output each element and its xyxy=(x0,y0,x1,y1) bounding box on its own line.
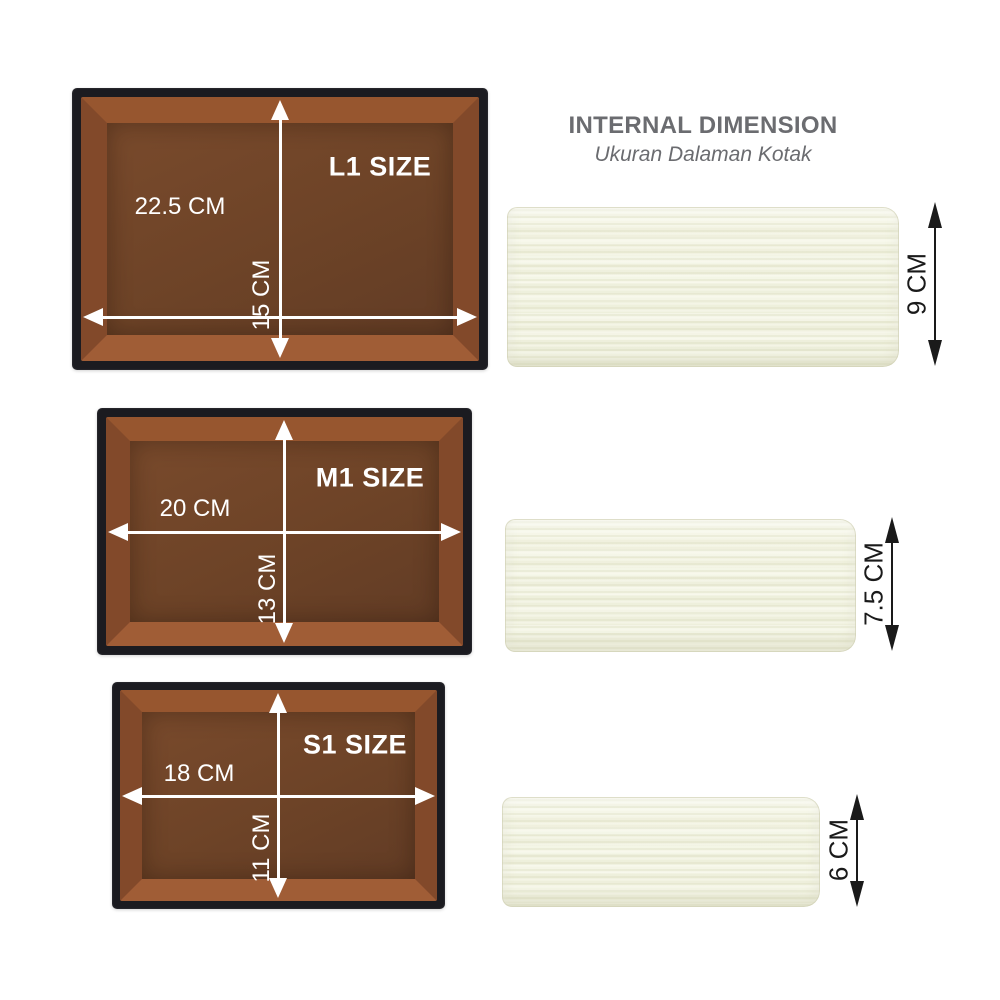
height-dimension-label-s1: 6 CM xyxy=(824,819,855,881)
page-subtitle: Ukuran Dalaman Kotak xyxy=(503,143,903,167)
width-dimension-label: 18 CM xyxy=(164,760,235,788)
arrowhead-down-icon xyxy=(885,625,899,651)
side-view-box-m1 xyxy=(505,519,856,652)
arrowhead-right-icon xyxy=(457,308,477,326)
length-dimension-label: 13 CM xyxy=(254,554,282,625)
arrowhead-down-icon xyxy=(928,340,942,366)
arrowhead-up-icon xyxy=(271,100,289,120)
arrow-shaft xyxy=(891,543,894,625)
top-view-box-l1: 22.5 CM 15 CM L1 SIZE xyxy=(72,88,488,370)
arrowhead-right-icon xyxy=(441,523,461,541)
size-name-label: S1 SIZE xyxy=(303,730,407,761)
height-dimension-label-l1: 9 CM xyxy=(902,253,933,315)
arrow-shaft xyxy=(283,440,286,623)
length-dimension-label: 11 CM xyxy=(248,814,276,883)
arrowhead-down-icon xyxy=(850,881,864,907)
arrowhead-up-icon xyxy=(269,693,287,713)
arrow-shaft xyxy=(856,820,859,881)
arrowhead-up-icon xyxy=(928,202,942,228)
arrowhead-down-icon xyxy=(271,338,289,358)
arrowhead-up-icon xyxy=(885,517,899,543)
side-view-box-l1 xyxy=(507,207,899,367)
length-dimension-label: 15 CM xyxy=(248,260,276,331)
arrowhead-up-icon xyxy=(850,794,864,820)
arrow-shaft xyxy=(279,120,282,338)
arrowhead-up-icon xyxy=(275,420,293,440)
width-dimension-label: 20 CM xyxy=(160,495,231,523)
header: INTERNAL DIMENSION Ukuran Dalaman Kotak xyxy=(503,112,903,167)
arrowhead-right-icon xyxy=(415,787,435,805)
arrow-shaft xyxy=(934,228,937,340)
arrowhead-left-icon xyxy=(83,308,103,326)
side-view-box-s1 xyxy=(502,797,820,907)
arrowhead-down-icon xyxy=(275,623,293,643)
arrow-shaft xyxy=(277,713,280,878)
arrowhead-left-icon xyxy=(108,523,128,541)
page-title: INTERNAL DIMENSION xyxy=(503,112,903,140)
height-dimension-label-m1: 7.5 CM xyxy=(859,542,890,626)
width-dimension-label: 22.5 CM xyxy=(135,193,226,221)
size-name-label: M1 SIZE xyxy=(316,463,425,494)
product-dimension-diagram: INTERNAL DIMENSION Ukuran Dalaman Kotak … xyxy=(0,0,1000,1000)
top-view-box-s1: 18 CM 11 CM S1 SIZE xyxy=(112,682,445,909)
size-name-label: L1 SIZE xyxy=(329,152,432,183)
top-view-box-m1: 20 CM 13 CM M1 SIZE xyxy=(97,408,472,655)
arrowhead-left-icon xyxy=(122,787,142,805)
